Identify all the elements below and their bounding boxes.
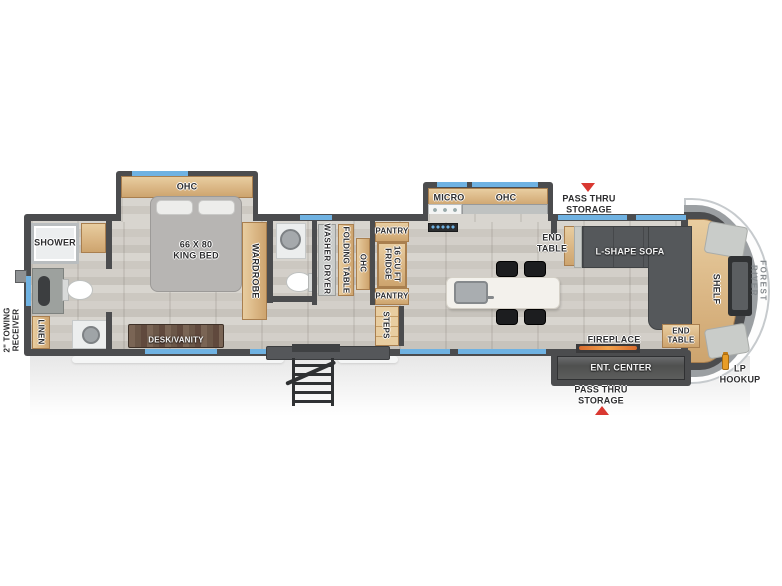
window-bottom-bedroom — [145, 349, 217, 354]
pillow-right — [198, 200, 235, 215]
bedroom-hall-wall — [267, 221, 273, 303]
window-top-living-1 — [558, 215, 627, 220]
pass-thru-bottom-arrow — [595, 406, 609, 415]
kitchen-ohc-label: OHC — [496, 193, 517, 204]
cooktop-burners — [430, 225, 456, 230]
sofa-label: L-SHAPE SOFA — [596, 247, 665, 258]
micro-label: MICRO — [434, 193, 465, 204]
steps-wall — [399, 306, 404, 346]
rear-wall-window — [26, 276, 31, 306]
front-cushion-top — [704, 221, 749, 259]
desk-vanity-label: DESK/VANITY — [148, 335, 203, 344]
ent-center-label: ENT. CENTER — [590, 363, 651, 374]
window-top-living-2 — [636, 215, 686, 220]
laundry-kitchen-wall — [370, 221, 375, 305]
pass-thru-bottom-label: PASS THRU STORAGE — [574, 384, 627, 405]
shelf-label: SHELF — [711, 274, 722, 305]
window-top-midbath — [300, 215, 332, 220]
bath-sink — [82, 326, 100, 344]
steps-label: STEPS — [381, 311, 390, 338]
island-chair-1 — [496, 261, 518, 277]
pass-thru-top-arrow — [581, 183, 595, 192]
bath-corner-cabinet — [81, 223, 106, 253]
entry-threshold — [292, 344, 340, 352]
walkway-left — [72, 356, 284, 363]
pass-thru-top-label: PASS THRU STORAGE — [562, 193, 615, 214]
wardrobe-label: WARDROBE — [250, 243, 261, 298]
island-sink — [454, 281, 488, 304]
end-table-rear-label: END TABLE — [667, 327, 694, 346]
island-chair-4 — [524, 309, 546, 325]
kitchen-slide-opening — [428, 214, 548, 222]
midbath-bottom-wall — [273, 296, 315, 302]
linen-label: LINEN — [36, 320, 45, 345]
bath-bedroom-wall-upper — [106, 221, 112, 269]
pantry-top-label: PANTRY — [375, 226, 408, 235]
fridge-label: 16 CU FT FRIDGE — [383, 246, 402, 282]
washer-dryer-label: WASHER DRYER — [322, 223, 331, 294]
fireplace-label: FIREPLACE — [588, 335, 641, 346]
kitchen-slide-window-1 — [437, 182, 467, 187]
midbath-sink — [280, 229, 301, 250]
brand-label: FOREST RIVER — [749, 260, 768, 301]
sofa-chaise — [648, 226, 692, 330]
island-chair-3 — [496, 309, 518, 325]
fireplace-flame — [579, 346, 637, 350]
window-bottom-kitchen — [400, 349, 450, 354]
toilet-front — [67, 280, 93, 300]
bedroom-slide-window — [132, 171, 188, 176]
laundry-ohc-label: OHC — [358, 254, 367, 272]
window-bottom-island — [458, 349, 546, 354]
towing-receiver-label: 2" TOWING RECEIVER — [3, 307, 22, 352]
pillow-left — [156, 200, 193, 215]
bath-bedroom-wall-lower — [106, 312, 112, 349]
midbath-right-wall — [312, 221, 317, 305]
folding-table-label: FOLDING TABLE — [341, 227, 350, 294]
bath-vanity-slot — [38, 276, 50, 306]
rv-floorplan: SHELF FOREST RIVER OHC MICRO OHC ENT. CE… — [0, 0, 782, 586]
island-faucet — [486, 296, 494, 299]
lp-hookup-label: LP HOOKUP — [720, 363, 761, 384]
end-table-front-label: END TABLE — [537, 232, 567, 253]
pantry-bottom-label: PANTRY — [375, 291, 408, 300]
kitchen-slide-window-2 — [472, 182, 538, 187]
sofa-armrest — [574, 226, 582, 268]
island-chair-2 — [524, 261, 546, 277]
front-tv-screen — [732, 262, 748, 310]
shower-label: SHOWER — [34, 238, 76, 249]
king-bed-label: 66 X 80 KING BED — [173, 239, 219, 260]
bedroom-ohc-label: OHC — [177, 182, 198, 193]
